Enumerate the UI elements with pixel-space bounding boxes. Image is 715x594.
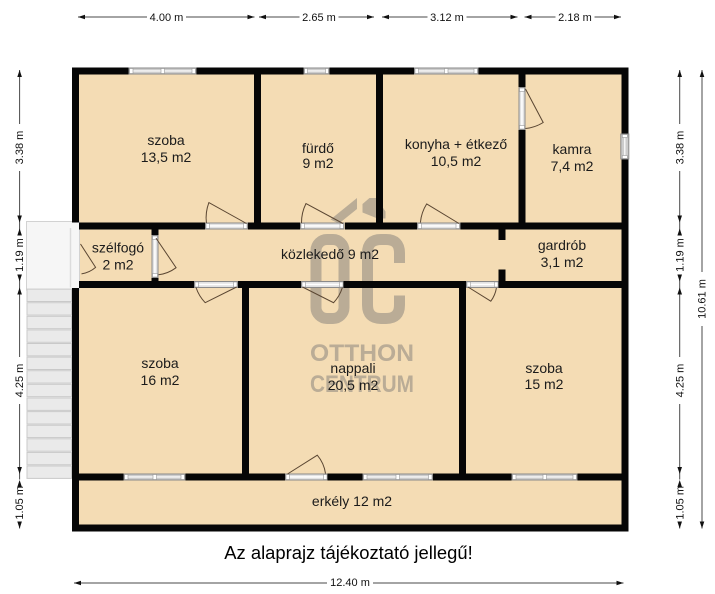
svg-text:4.25 m: 4.25 m [14,364,26,398]
svg-text:4.25 m: 4.25 m [675,364,687,398]
svg-text:szoba: szoba [147,132,185,148]
svg-text:2.18 m: 2.18 m [558,12,592,24]
svg-text:közlekedő 9 m2: közlekedő 9 m2 [281,246,379,262]
svg-text:7,4 m2: 7,4 m2 [551,158,594,174]
svg-text:2 m2: 2 m2 [102,257,133,273]
svg-text:szoba: szoba [141,355,179,371]
svg-text:1.05 m: 1.05 m [675,486,687,520]
svg-text:16 m2: 16 m2 [141,372,180,388]
svg-text:gardrób: gardrób [538,237,586,253]
svg-text:9 m2: 9 m2 [302,155,333,171]
svg-text:2.65 m: 2.65 m [302,12,336,24]
svg-text:15 m2: 15 m2 [525,376,564,392]
svg-text:3.12 m: 3.12 m [430,12,464,24]
svg-text:3,1 m2: 3,1 m2 [541,254,584,270]
svg-text:konyha + étkező: konyha + étkező [405,136,508,152]
svg-text:erkély 12 m2: erkély 12 m2 [312,493,392,509]
svg-text:1.19 m: 1.19 m [675,238,687,272]
svg-text:Az alaprajz tájékoztató jelleg: Az alaprajz tájékoztató jellegű! [224,542,472,563]
svg-text:4.00 m: 4.00 m [150,12,184,24]
svg-text:3.38 m: 3.38 m [14,131,26,165]
svg-text:20,5 m2: 20,5 m2 [328,377,379,393]
svg-text:12.40 m: 12.40 m [330,577,370,589]
svg-text:10,5 m2: 10,5 m2 [431,153,482,169]
svg-text:13,5 m2: 13,5 m2 [141,149,192,165]
svg-text:1.05 m: 1.05 m [14,486,26,520]
svg-text:kamra: kamra [553,141,592,157]
svg-text:10.61 m: 10.61 m [696,279,708,319]
svg-text:nappali: nappali [330,360,375,376]
svg-text:szélfogó: szélfogó [92,240,144,256]
svg-text:fürdő: fürdő [302,140,334,156]
svg-text:szoba: szoba [525,360,563,376]
svg-text:1.19 m: 1.19 m [14,238,26,272]
svg-text:3.38 m: 3.38 m [675,131,687,165]
